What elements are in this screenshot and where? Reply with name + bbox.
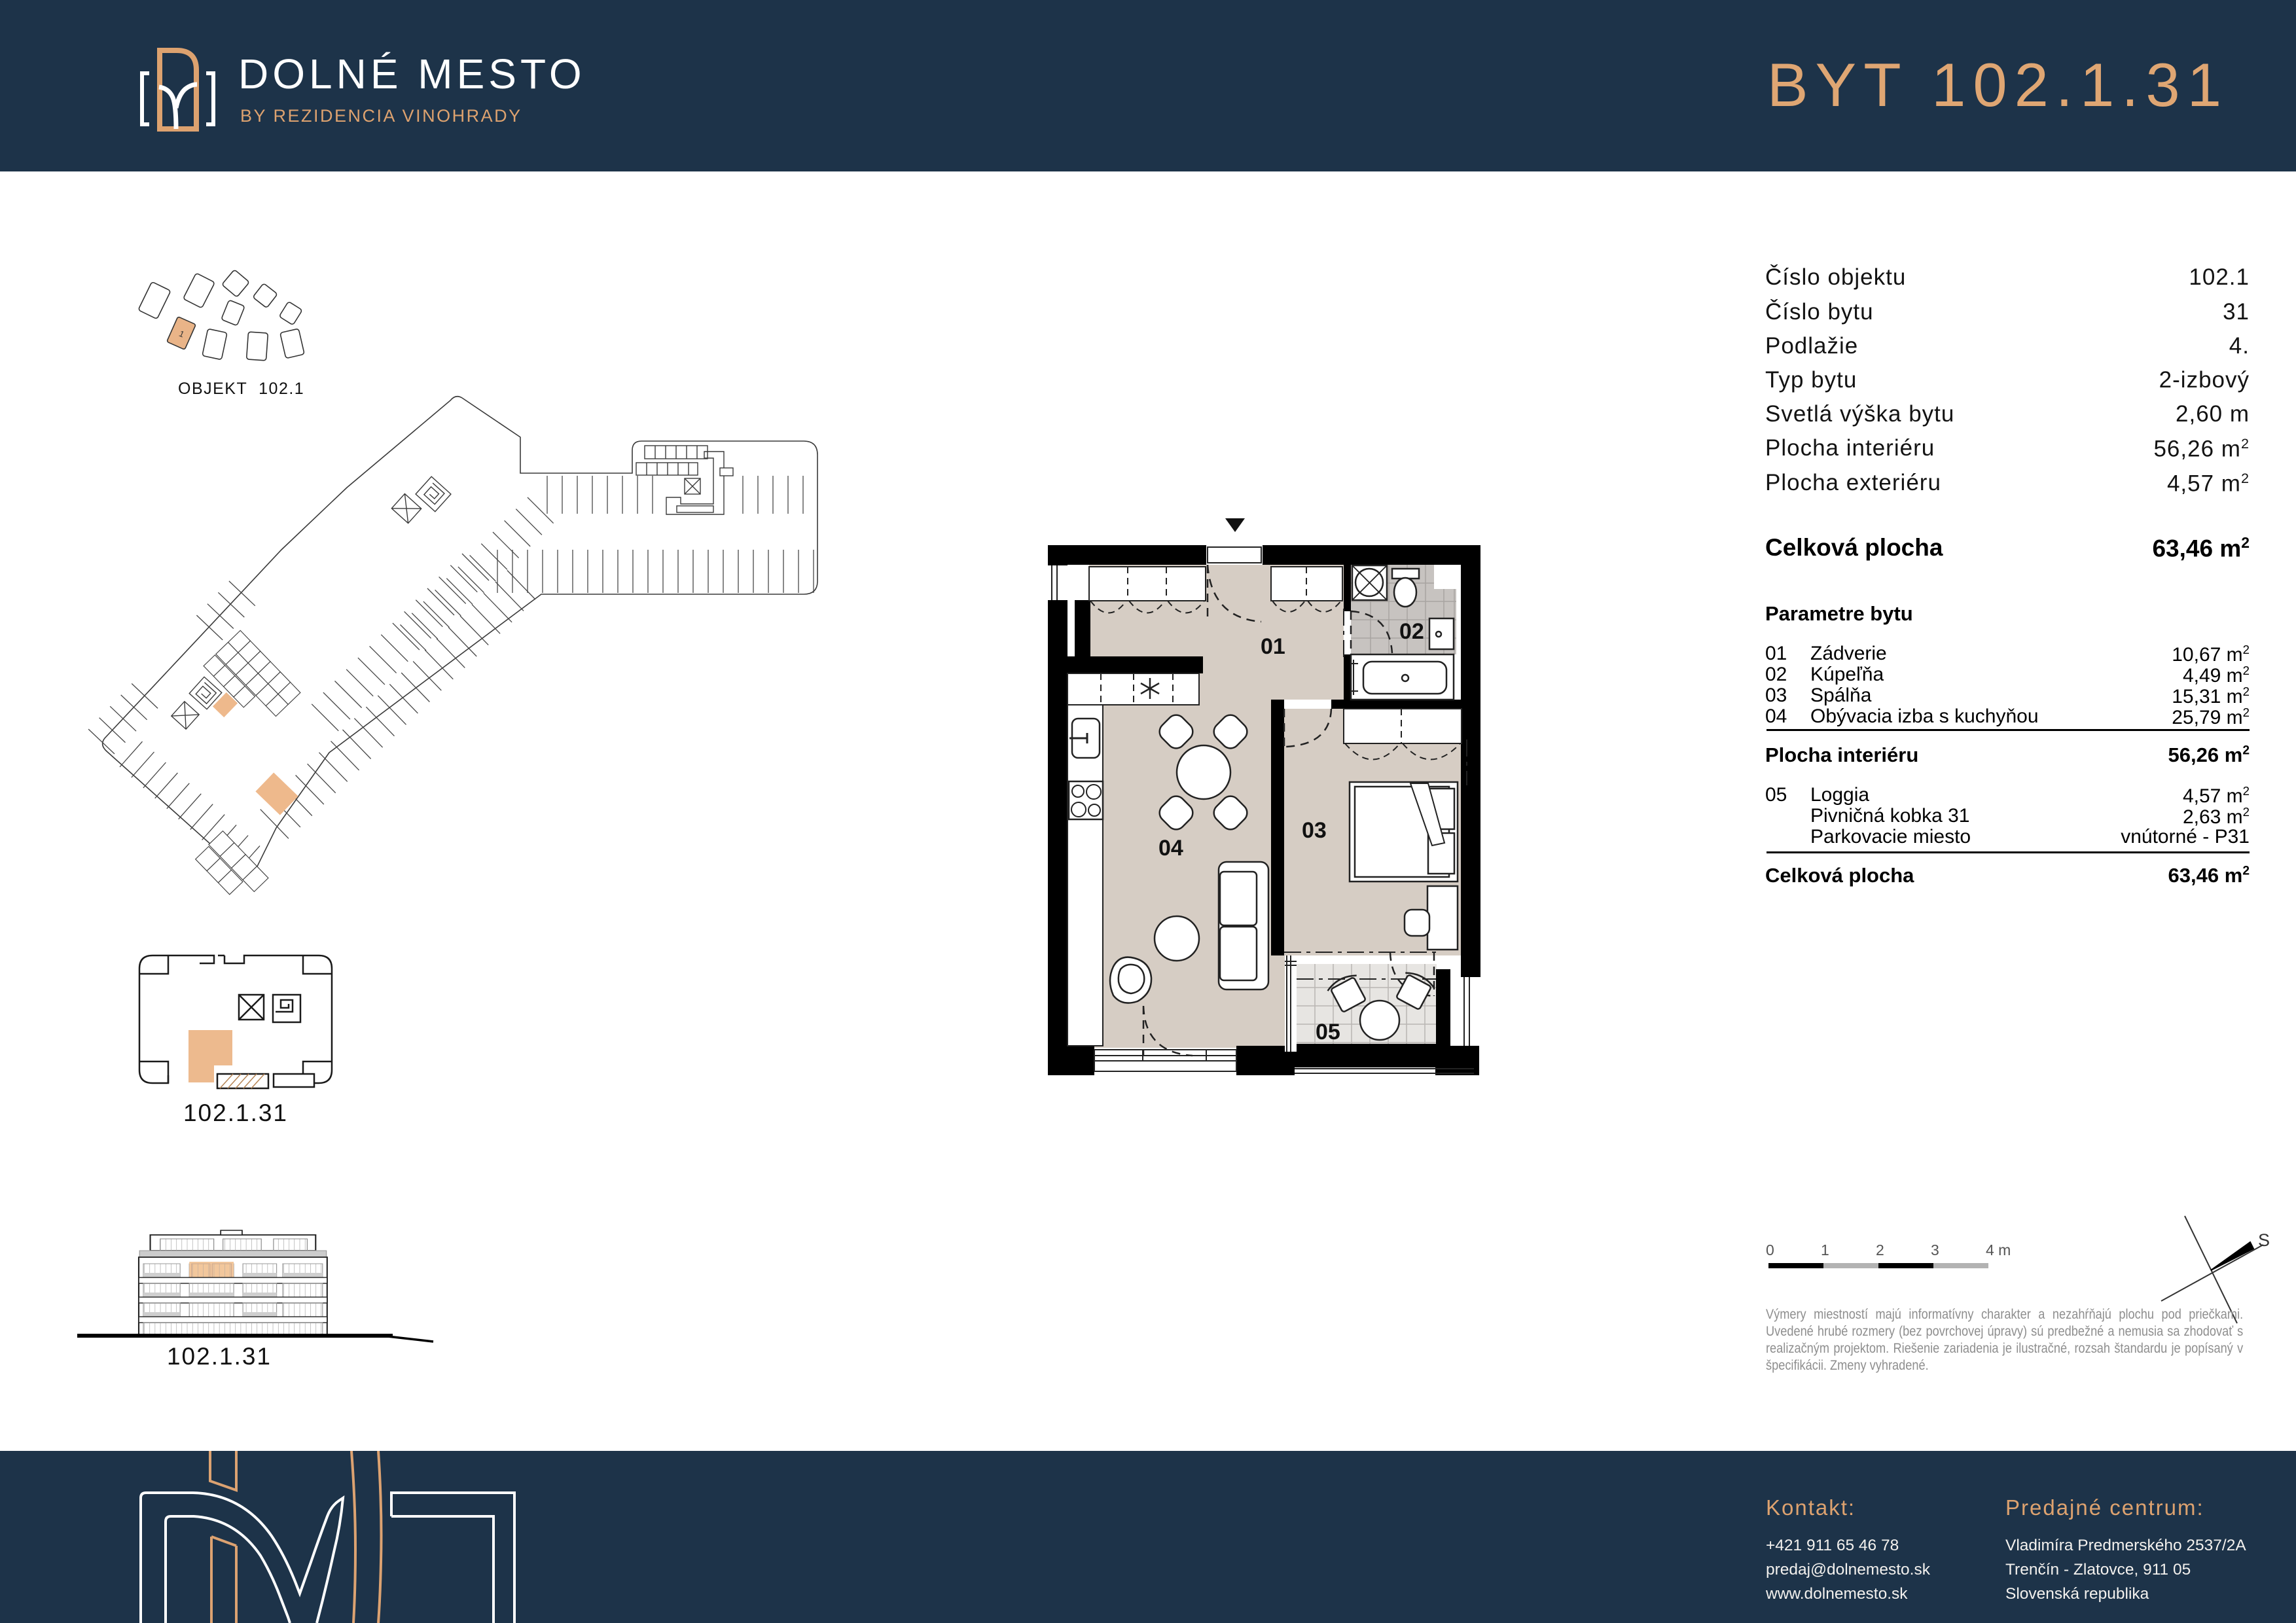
svg-text:04: 04 [1158,836,1183,861]
svg-text:3: 3 [1931,1241,1939,1258]
svg-text:S: S [2258,1230,2270,1250]
svg-text:4 m: 4 m [1986,1241,2011,1258]
svg-text:1: 1 [1821,1241,1829,1258]
svg-text:03: 03 [1302,818,1327,843]
svg-text:0: 0 [1766,1241,1774,1258]
svg-text:2: 2 [1876,1241,1884,1258]
svg-text:01: 01 [1261,634,1285,659]
svg-text:05: 05 [1316,1020,1340,1044]
svg-text:02: 02 [1399,619,1424,644]
